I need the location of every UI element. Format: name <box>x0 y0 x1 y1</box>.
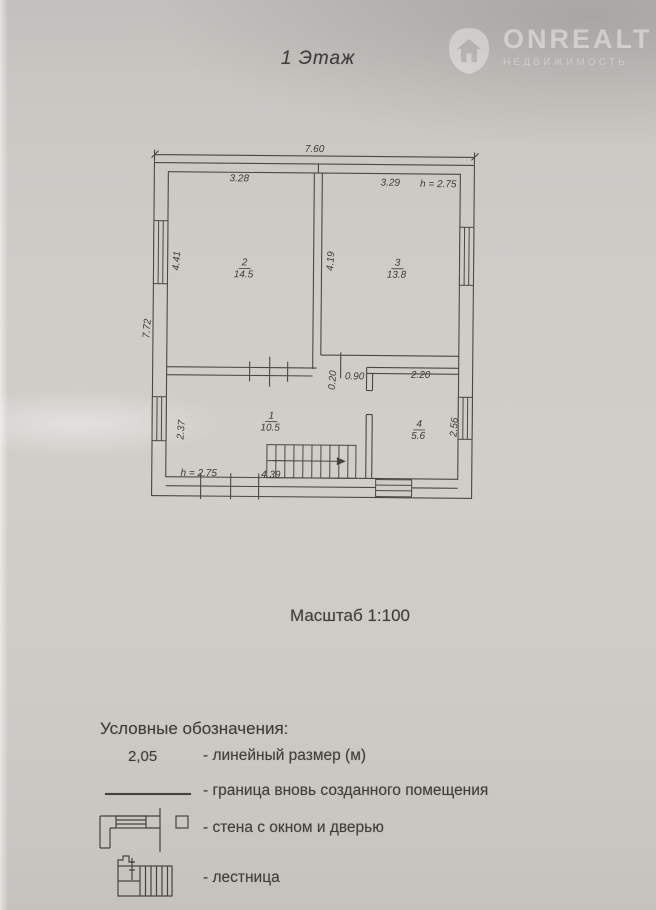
room1-area: 10.5 <box>260 423 280 434</box>
dim-stairs-width: 4.39 <box>261 470 281 481</box>
dim-room4-width: 2.20 <box>410 370 431 381</box>
dim-wall-jog: 0.20 <box>327 370 340 391</box>
legend-label-boundary: - граница вновь созданного помещения <box>203 782 488 800</box>
room2-area: 14.5 <box>234 269 254 280</box>
wall-with-window-door-symbol <box>96 806 201 852</box>
room4-number: 4 <box>416 419 422 430</box>
dim-ceiling-height-bottom: h = 2.75 <box>180 468 217 479</box>
dim-room2-width: 3.28 <box>230 173 250 184</box>
dim-room4-height: 2.56 <box>448 417 461 439</box>
dim-partition-height: 4.19 <box>325 251 338 272</box>
dim-outer-left-height: 7.72 <box>141 318 154 339</box>
stairs-direction-arrow <box>337 457 346 465</box>
photographed-floor-plan-page: ONREALT НЕДВИЖИМОСТЬ 1 Этаж <box>0 0 656 910</box>
room-labels: 2 14.5 3 13.8 1 10.5 4 5.6 <box>232 256 427 442</box>
floor-plan-drawing: 7.60 3.28 3.29 h = 2.75 4.41 4.19 7.72 0… <box>0 0 656 910</box>
plan-walls <box>149 150 479 502</box>
dim-overall-width: 7.60 <box>305 144 325 155</box>
room1-number: 1 <box>268 411 274 422</box>
legend-label-wall: - стена с окном и дверью <box>203 819 384 837</box>
room4-area: 5.6 <box>411 431 425 442</box>
dim-room1-height: 2.37 <box>175 419 188 441</box>
legend-label-linear-size: - линейный размер (м) <box>203 747 366 765</box>
legend-label-stairs: - лестница <box>203 869 280 887</box>
legend-heading: Условные обозначения: <box>100 719 288 739</box>
room2-number: 2 <box>241 257 248 268</box>
boundary-line-symbol <box>105 793 191 795</box>
dim-opening-width: 0.90 <box>345 371 365 382</box>
room3-number: 3 <box>395 258 401 269</box>
dim-room3-width: 3.29 <box>381 178 401 189</box>
dim-ceiling-height-top: h = 2.75 <box>420 179 457 190</box>
legend-sample-dimension: 2,05 <box>128 748 157 765</box>
dim-room2-height: 4.41 <box>171 251 183 271</box>
room3-area: 13.8 <box>387 270 407 281</box>
room-number-underlines <box>237 267 426 430</box>
stairs-symbol <box>110 850 180 902</box>
scale-caption: Масштаб 1:100 <box>240 606 460 626</box>
